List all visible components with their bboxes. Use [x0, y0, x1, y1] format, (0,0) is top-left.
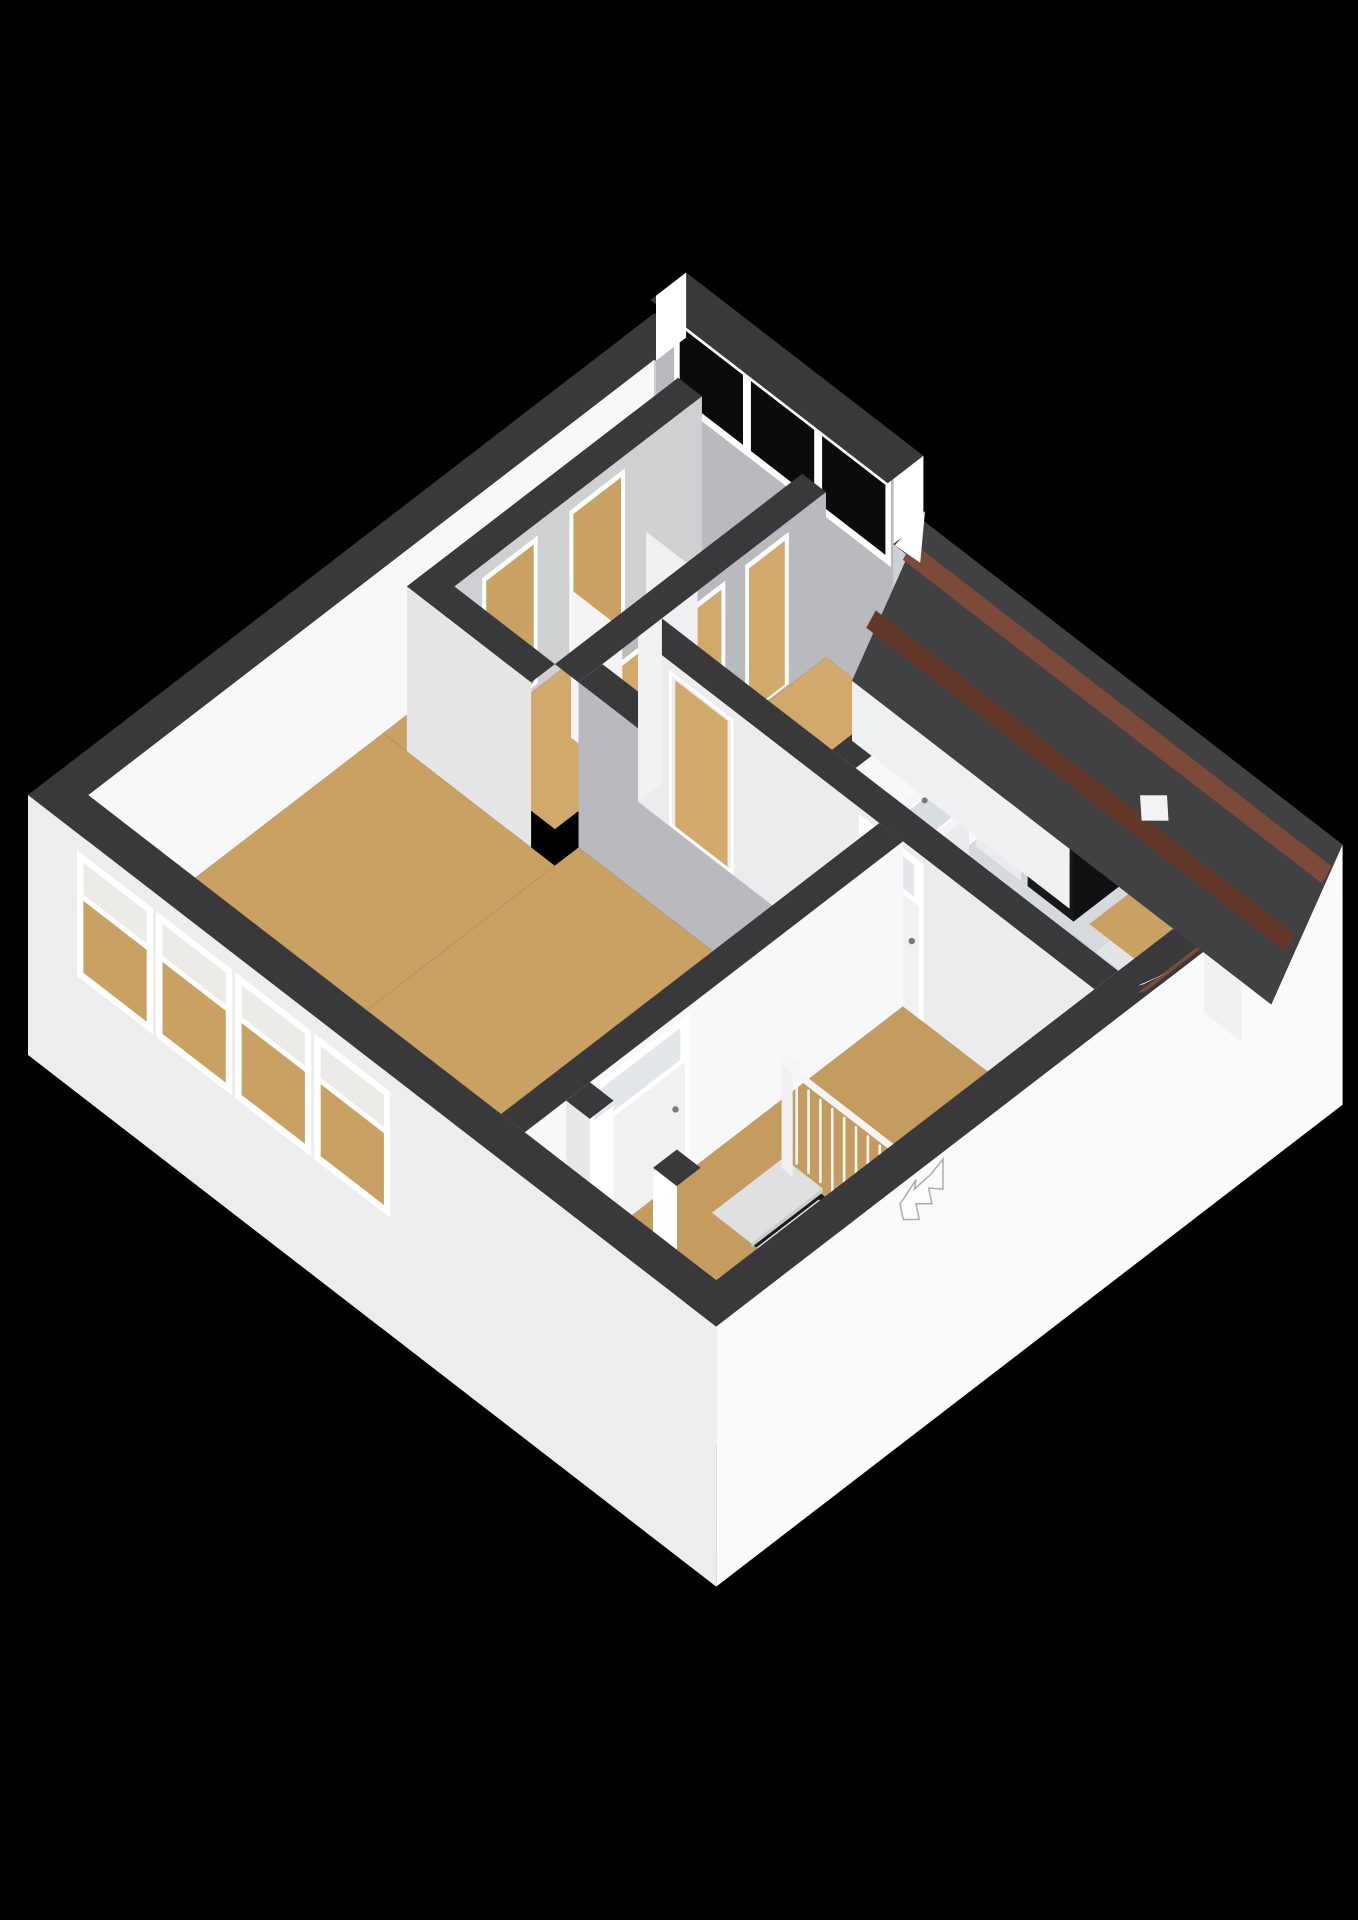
- floorplan-stage: [0, 0, 1358, 1920]
- bathroom-door-handle: [909, 938, 915, 944]
- hallway-right-wall-end: [638, 618, 662, 801]
- newel-post: [782, 1064, 793, 1177]
- floorplan-3d-render: [0, 0, 1358, 1920]
- wall-b-door-opening-3: [749, 541, 785, 713]
- roof-window-flashing: [1140, 795, 1169, 821]
- bedroom-door-handle: [672, 1106, 678, 1112]
